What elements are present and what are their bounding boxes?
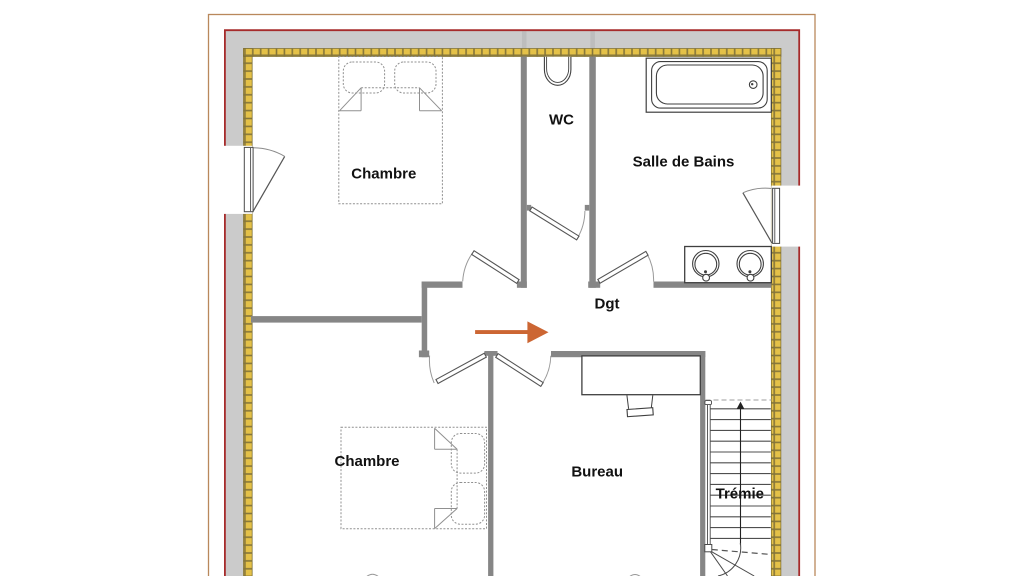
svg-text:Chambre: Chambre xyxy=(334,453,399,470)
svg-text:Dgt: Dgt xyxy=(595,296,620,313)
svg-text:Trémie: Trémie xyxy=(716,486,764,503)
svg-text:Bureau: Bureau xyxy=(571,464,623,481)
svg-text:Salle de Bains: Salle de Bains xyxy=(633,153,735,170)
svg-text:Chambre: Chambre xyxy=(351,166,416,183)
svg-text:WC: WC xyxy=(549,112,574,129)
